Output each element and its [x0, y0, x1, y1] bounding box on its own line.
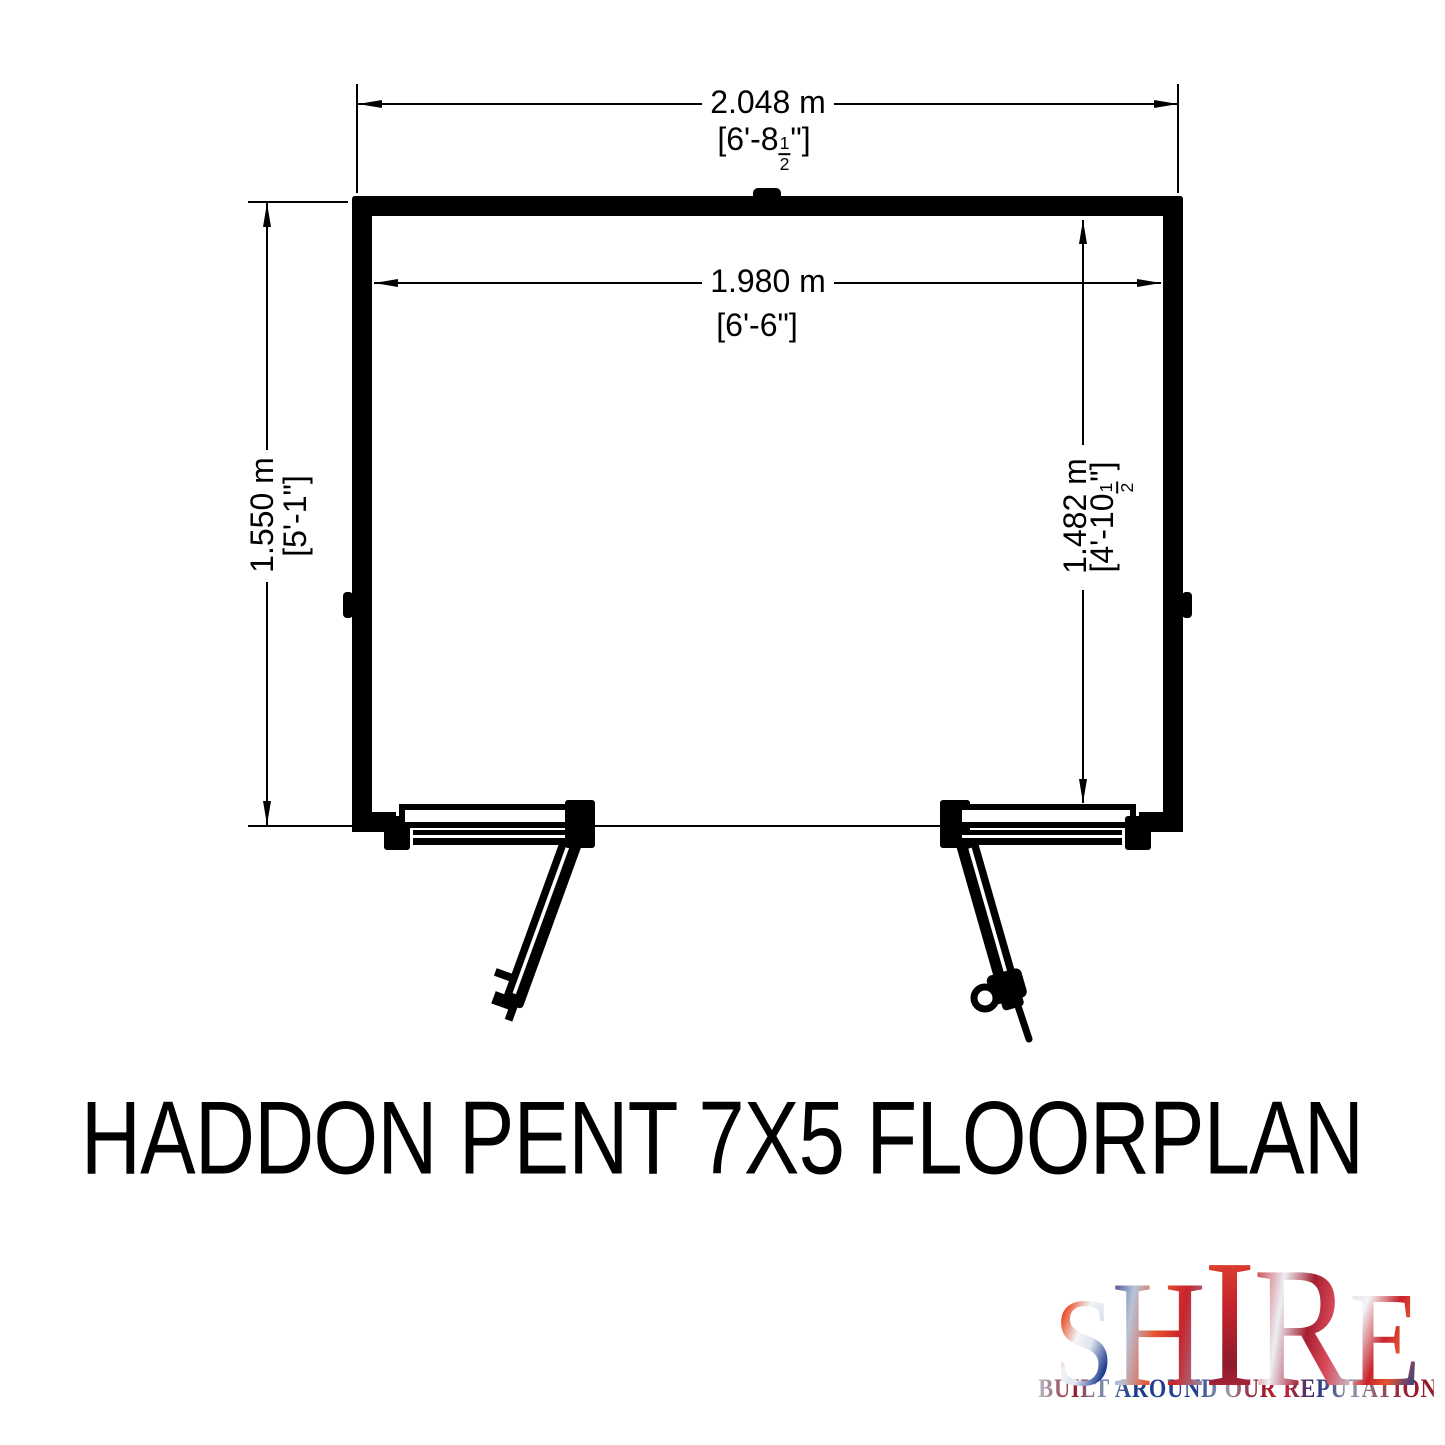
left-door-open-leaf — [481, 825, 584, 1023]
logo-tagline: BUILT AROUND OUR REPUTATION — [1038, 1374, 1434, 1404]
outer-depth-imperial-label: [5'-1"] — [279, 475, 313, 557]
left-door-closed-leaf — [399, 804, 579, 828]
wall-right — [1163, 196, 1183, 832]
right-door-closed-leaf — [956, 804, 1136, 828]
left-wall-stud-marker — [343, 592, 353, 618]
wall-left — [352, 196, 372, 832]
left-door-handle — [494, 968, 513, 981]
floorplan-page: 2.048 m [6'-812"] 1.980 m [6'-6"] 1.550 … — [0, 0, 1445, 1445]
shire-wordmark: S H I R E — [1038, 1232, 1434, 1372]
outer-depth-meters-label: 1.550 m — [246, 457, 280, 573]
outer-width-meters-label: 2.048 m — [710, 86, 826, 120]
right-door-sill — [962, 830, 1122, 845]
shire-logo: S H I R E BUILT AROUND OUR REPUTATION — [1038, 1232, 1434, 1404]
right-door-jamb — [1125, 816, 1151, 850]
inner-width-imperial-label: [6'-6"] — [716, 309, 798, 343]
left-door-sill — [413, 830, 573, 845]
outer-width-imperial-label: [6'-812"] — [717, 123, 810, 175]
roof-apex-marker — [753, 188, 781, 200]
left-door-hinge-post — [565, 800, 595, 848]
page-title: HADDON PENT 7X5 FLOORPLAN — [81, 1080, 1363, 1199]
inner-width-meters-label: 1.980 m — [710, 265, 826, 299]
right-wall-stud-marker — [1182, 592, 1192, 618]
inner-depth-imperial-label: [4'-1012"] — [1086, 461, 1138, 572]
